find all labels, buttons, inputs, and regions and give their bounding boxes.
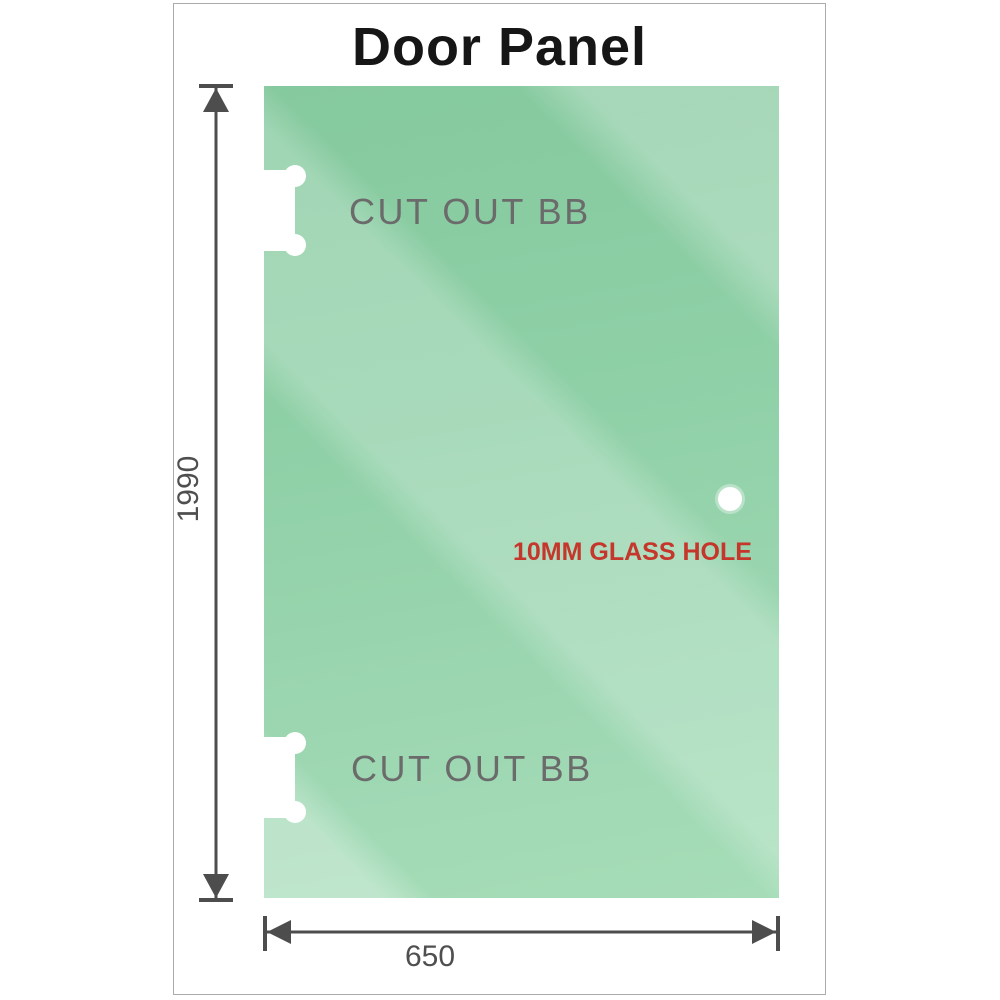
drawing-frame: Door Panel CUT OUT BB CUT OUT BB 10MM GL… [173, 3, 826, 995]
glass-hole-label: 10MM GLASS HOLE [513, 538, 713, 567]
hinge-cutout-bottom-shape [264, 730, 310, 824]
diagram-canvas: Door Panel CUT OUT BB CUT OUT BB 10MM GL… [0, 0, 1000, 1000]
cutout-top-label: CUT OUT BB [349, 191, 591, 233]
height-dimension-value: 1990 [172, 449, 202, 529]
hinge-cutout-top-shape [264, 163, 310, 257]
width-dimension-value: 650 [370, 940, 490, 974]
cutout-bottom-label: CUT OUT BB [351, 748, 593, 790]
door-glass-panel: CUT OUT BB CUT OUT BB 10MM GLASS HOLE [264, 86, 779, 898]
width-dimension-arrow [259, 906, 784, 954]
page-title: Door Panel [174, 16, 825, 78]
glass-hole [718, 487, 742, 511]
